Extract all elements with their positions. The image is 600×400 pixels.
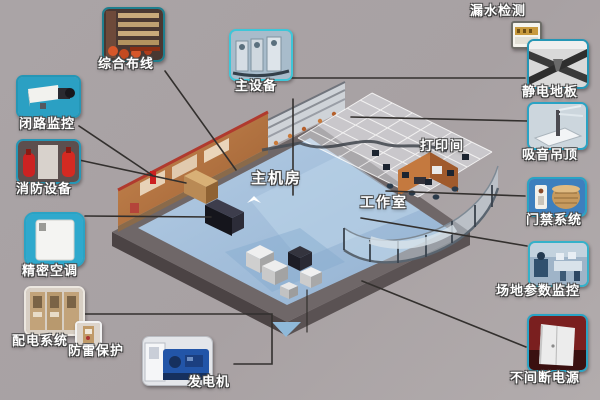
cabling-thumbnail xyxy=(102,7,165,62)
precision-ac-label: 精密空调 xyxy=(22,265,78,278)
main-room-label: 主机房 xyxy=(251,171,302,186)
machine-room-diagram: 综合布线 闭路监控 消防设备 精密空调 配电系统 防雷保护 发电机 主设备 漏水… xyxy=(0,0,600,400)
generator-label: 发电机 xyxy=(188,376,230,389)
access-control-label: 门禁系统 xyxy=(526,214,582,227)
leader-site-monitoring xyxy=(361,218,527,246)
leak-detection-label: 漏水检测 xyxy=(470,5,526,18)
cctv-thumbnail xyxy=(16,75,81,118)
leader-cabling xyxy=(165,71,236,170)
leader-fire xyxy=(79,160,186,183)
leader-precision-ac xyxy=(85,216,211,217)
cabling-label: 综合布线 xyxy=(98,58,154,71)
ups-label: 不间断电源 xyxy=(510,372,580,385)
precision-ac-thumbnail xyxy=(24,212,85,267)
site-monitoring-label: 场地参数监控 xyxy=(496,285,580,298)
fire-equipment-thumbnail xyxy=(16,139,81,184)
main-equipment-label: 主设备 xyxy=(235,80,277,93)
ups-thumbnail xyxy=(527,314,588,372)
power-distribution-label: 配电系统 xyxy=(12,335,68,348)
workroom-label: 工作室 xyxy=(360,196,408,210)
lightning-protection-label: 防雷保护 xyxy=(68,345,124,358)
cctv-label: 闭路监控 xyxy=(19,118,75,131)
antistatic-floor-thumbnail xyxy=(527,39,589,89)
acoustic-ceiling-label: 吸音吊顶 xyxy=(522,149,578,162)
fire-equipment-label: 消防设备 xyxy=(16,183,72,196)
main-equipment-thumbnail xyxy=(229,29,293,81)
print-room-label: 打印间 xyxy=(420,140,465,153)
access-control-thumbnail xyxy=(527,177,587,217)
leader-acoustic-ceiling xyxy=(351,117,527,121)
site-monitoring-thumbnail xyxy=(528,241,589,287)
acoustic-ceiling-thumbnail xyxy=(527,102,588,150)
antistatic-floor-label: 静电地板 xyxy=(522,86,578,99)
